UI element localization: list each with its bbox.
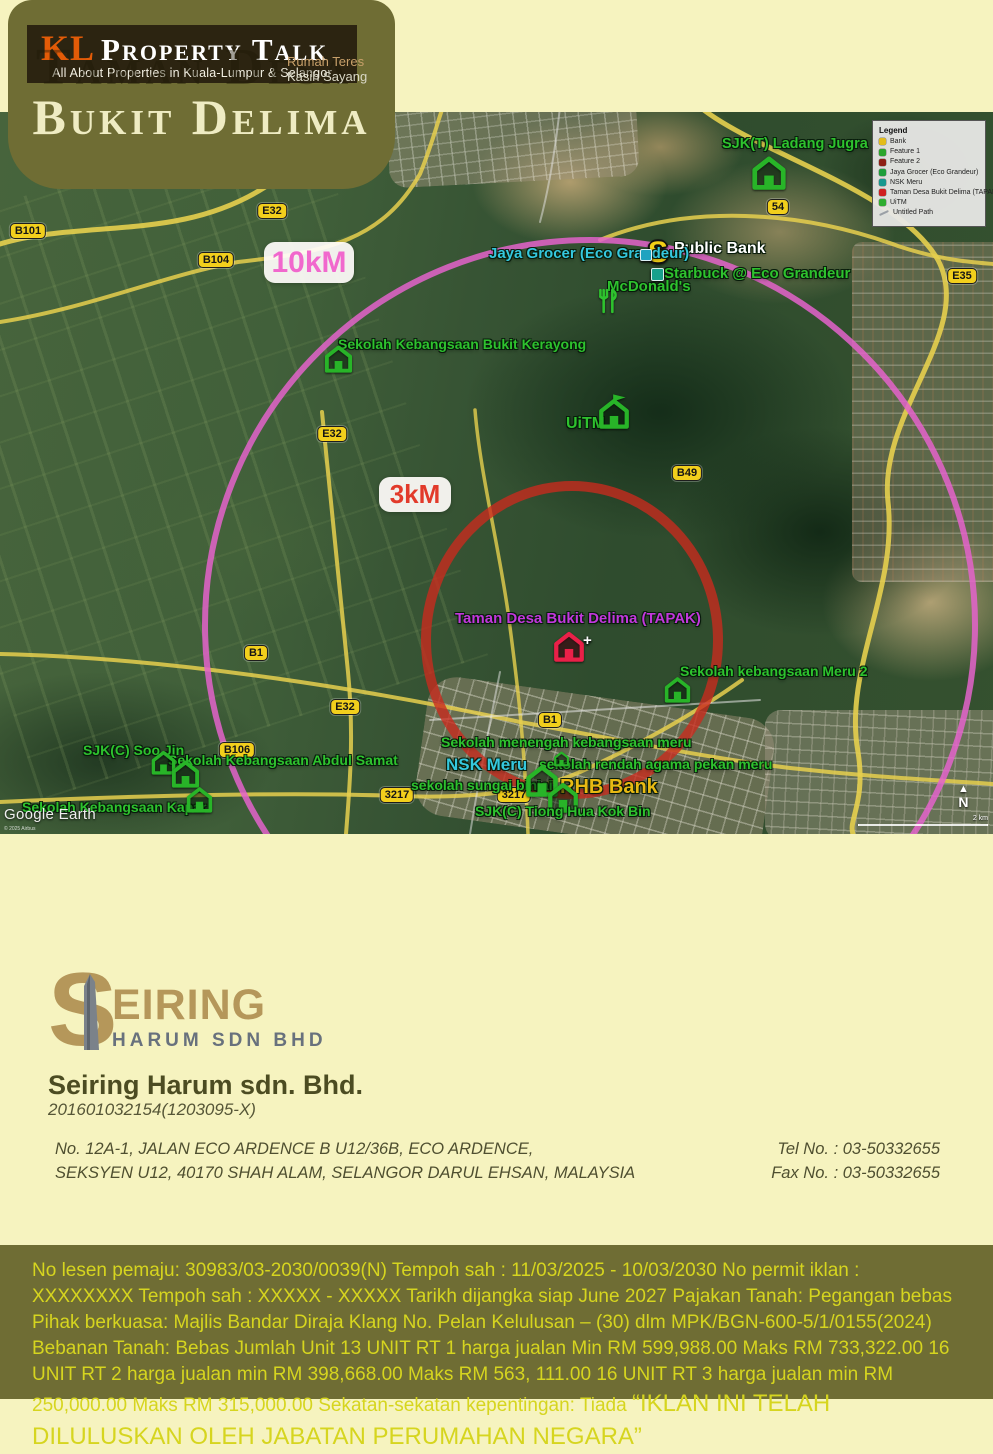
urban-patch-right xyxy=(852,242,993,582)
legend-title: Legend xyxy=(879,126,979,135)
map-label: SJK(T) Ladang Jugra xyxy=(722,137,868,152)
company-name: Seiring Harum sdn. Bhd. xyxy=(48,1070,363,1101)
map-attribution: © 2025 Airbus xyxy=(4,826,35,832)
school-marker-icon xyxy=(663,673,692,704)
road-badge: 54 xyxy=(767,199,789,215)
legend-marker-icon xyxy=(879,149,886,156)
logo-text: EIRING HARUM SDN BHD xyxy=(112,970,327,1052)
address-line-1: No. 12A-1, JALAN ECO ARDENCE B U12/36B, … xyxy=(55,1138,635,1162)
road-lines xyxy=(0,112,993,834)
fax-number: Fax No. : 03-50332655 xyxy=(771,1162,940,1186)
legend-item-label: Feature 1 xyxy=(890,148,920,156)
legend-item-label: Jaya Grocer (Eco Grandeur) xyxy=(890,169,978,177)
road-badge: B101 xyxy=(10,223,46,239)
project-title: Bukit Delima xyxy=(8,88,395,146)
legend-item: Untitled Path xyxy=(879,209,979,217)
road-badge: E32 xyxy=(317,426,347,442)
farmland-texture xyxy=(0,112,488,800)
side-note-kasih-sayang: Kasih Sayang xyxy=(287,70,367,85)
store-marker-icon xyxy=(640,249,652,261)
university-marker-icon xyxy=(597,394,631,431)
scalebar-line xyxy=(858,824,988,826)
map-label: NSK Meru xyxy=(446,756,527,773)
company-telfax: Tel No. : 03-50332655 Fax No. : 03-50332… xyxy=(771,1138,940,1186)
map-label: Sekolah kebangsaan Meru 2 xyxy=(680,664,868,678)
legend-item: Feature 2 xyxy=(879,158,979,166)
north-label: N xyxy=(958,795,969,809)
map-overlay-graphics xyxy=(0,112,993,834)
map-label: SJK(C) Tiong Hua Kok Bin xyxy=(475,804,651,818)
path-line-icon xyxy=(879,210,889,216)
legend-item: Bank xyxy=(879,138,979,146)
road-badge: E35 xyxy=(947,268,977,284)
legend-marker-icon xyxy=(879,179,886,186)
road-badge: 3217 xyxy=(380,787,414,803)
developer-logo: S EIRING HARUM SDN BHD xyxy=(48,970,327,1056)
building-icon xyxy=(76,970,106,1054)
school-marker-icon xyxy=(323,341,354,375)
legend-item: Taman Desa Bukit Delima (TAPAK) xyxy=(879,189,979,197)
contact-row: No. 12A-1, JALAN ECO ARDENCE B U12/36B, … xyxy=(55,1138,940,1186)
project-site-marker-icon xyxy=(552,627,586,664)
urban-patch-top xyxy=(386,112,640,188)
site-crosshair-icon: + xyxy=(583,633,592,648)
legend-item: Feature 1 xyxy=(879,148,979,156)
legend-item: UiTM xyxy=(879,199,979,207)
map-label: Starbuck @ Eco Grandeur xyxy=(664,266,850,281)
company-address: No. 12A-1, JALAN ECO ARDENCE B U12/36B, … xyxy=(55,1138,635,1186)
address-line-2: SEKSYEN U12, 40170 SHAH ALAM, SELANGOR D… xyxy=(55,1162,635,1186)
side-notes: Rumah Teres Kasih Sayang xyxy=(287,55,367,85)
legend-marker-icon xyxy=(879,169,886,176)
map-label: Sekolah menengah kebangsaan meru xyxy=(441,735,692,749)
google-earth-watermark: Google Earth xyxy=(4,806,96,823)
map-legend: Legend BankFeature 1Feature 2Jaya Grocer… xyxy=(872,120,986,227)
legal-paragraph: No lesen pemaju: 30983/03-2030/0039(N) T… xyxy=(32,1258,965,1454)
map-label: Sekolah Kebangsaan Bukit Kerayong xyxy=(338,337,586,351)
legend-item-label: UiTM xyxy=(890,199,907,207)
road-badge: E32 xyxy=(257,203,287,219)
school-marker-icon xyxy=(750,151,788,192)
road-badge: B1 xyxy=(244,645,268,661)
map-scalebar: 2 km xyxy=(858,815,988,826)
legend-item: Jaya Grocer (Eco Grandeur) xyxy=(879,169,979,177)
logo-name: EIRING xyxy=(112,984,327,1027)
legend-marker-icon xyxy=(879,138,886,145)
legend-marker-icon xyxy=(879,159,886,166)
satellite-map: 10kM3kM E32B101B10454E35E32B49B1E32B1B10… xyxy=(0,112,993,834)
school-marker-icon xyxy=(185,783,214,814)
legend-items: BankFeature 1Feature 2Jaya Grocer (Eco G… xyxy=(879,138,979,217)
road-badge: E32 xyxy=(330,699,360,715)
legend-item-label: NSK Meru xyxy=(890,179,922,187)
map-label: Sekolah Kebangsaan Abdul Samat xyxy=(168,753,398,767)
north-indicator: ▲ N xyxy=(958,784,969,809)
radius-distance-label: 3kM xyxy=(379,477,451,512)
header-card: Taman Desa KLProperty Talk All About Pro… xyxy=(8,0,395,189)
legal-footer: No lesen pemaju: 30983/03-2030/0039(N) T… xyxy=(0,1245,993,1399)
company-registration-number: 201601032154(1203095-X) xyxy=(48,1100,256,1120)
legend-marker-icon xyxy=(879,189,886,196)
logo-subtitle: HARUM SDN BHD xyxy=(112,1030,327,1052)
radius-distance-label: 10kM xyxy=(264,242,354,283)
scale-label: 2 km xyxy=(973,815,988,822)
legend-marker-icon xyxy=(879,199,886,206)
map-label: sekolah rendah agama pekan meru xyxy=(539,757,772,771)
flyer-page: { "header": { "brand_kl": "KL", "brand_r… xyxy=(0,0,993,1404)
map-label: Jaya Grocer (Eco Grandeur) xyxy=(489,246,689,261)
legend-item: NSK Meru xyxy=(879,179,979,187)
map-label: Taman Desa Bukit Delima (TAPAK) xyxy=(455,611,701,626)
road-badge: B49 xyxy=(672,465,702,481)
road-badge: B1 xyxy=(538,712,562,728)
side-note-rumah-teres: Rumah Teres xyxy=(287,55,367,70)
seiring-logo-mark: S xyxy=(48,970,110,1056)
legend-item-label: Taman Desa Bukit Delima (TAPAK) xyxy=(890,189,993,197)
road-badge: B104 xyxy=(198,252,234,268)
mcdonalds-utensils-icon xyxy=(596,288,620,314)
legend-item-label: Untitled Path xyxy=(893,209,933,217)
legend-item-label: Bank xyxy=(890,138,906,146)
legend-item-label: Feature 2 xyxy=(890,158,920,166)
tel-number: Tel No. : 03-50332655 xyxy=(771,1138,940,1162)
